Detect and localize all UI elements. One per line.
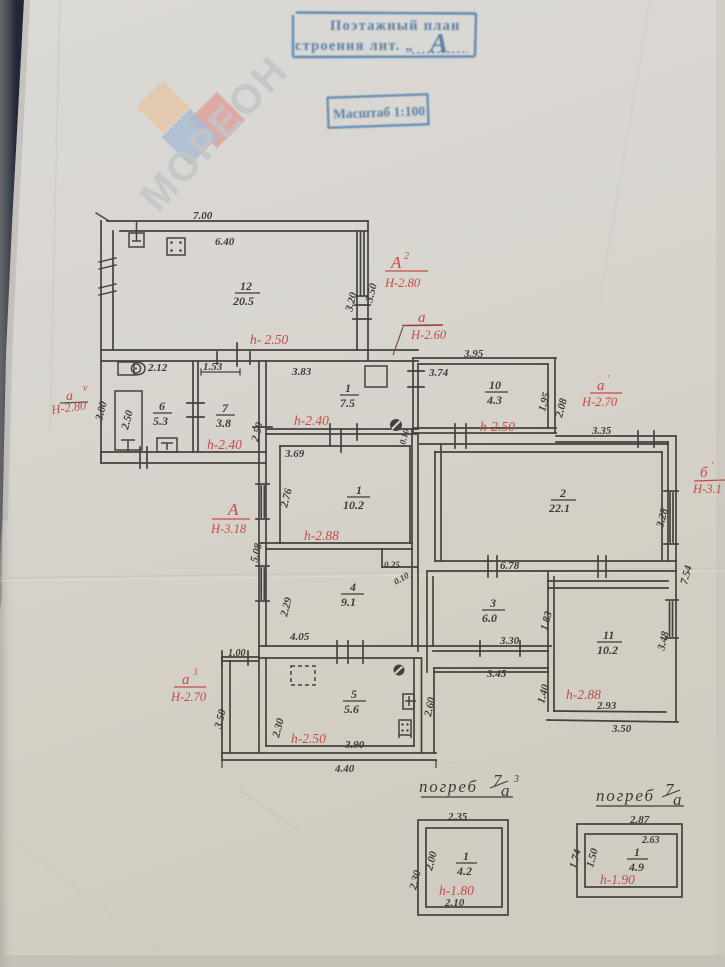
svg-text:3.83: 3.83 bbox=[291, 366, 312, 378]
svg-text:а: а bbox=[182, 672, 190, 688]
svg-text:20.5: 20.5 bbox=[232, 294, 254, 308]
svg-text:4.2: 4.2 bbox=[456, 864, 472, 878]
svg-text:7: 7 bbox=[222, 401, 229, 415]
svg-text:3.50: 3.50 bbox=[611, 723, 632, 735]
svg-text:3.69: 3.69 bbox=[284, 448, 305, 460]
svg-text:2.10: 2.10 bbox=[444, 897, 465, 909]
svg-text:3: 3 bbox=[192, 667, 198, 677]
svg-text:0.25: 0.25 bbox=[384, 560, 400, 570]
svg-text:3.35: 3.35 bbox=[591, 425, 612, 437]
svg-text:7.5: 7.5 bbox=[340, 396, 355, 410]
svg-text:10: 10 bbox=[489, 378, 501, 392]
svg-text:h-2.40: h-2.40 bbox=[207, 437, 242, 452]
svg-text:Н-2.60: Н-2.60 bbox=[410, 328, 447, 342]
svg-text:h-2.88: h-2.88 bbox=[304, 528, 339, 543]
svg-text:h-2.40: h-2.40 bbox=[294, 413, 329, 428]
svg-text:2: 2 bbox=[404, 251, 409, 262]
svg-text:9.1: 9.1 bbox=[341, 595, 356, 609]
svg-text:3.74: 3.74 bbox=[428, 367, 449, 379]
svg-text:h-2.88: h-2.88 bbox=[566, 687, 601, 702]
svg-text:а: а bbox=[597, 378, 605, 394]
svg-text:6.40: 6.40 bbox=[215, 236, 235, 248]
svg-text:строения лит. „: строения лит. „ bbox=[295, 38, 414, 54]
svg-text:А: А bbox=[428, 28, 448, 58]
svg-text:11: 11 bbox=[603, 628, 614, 642]
svg-text:3.30: 3.30 bbox=[499, 635, 520, 647]
svg-text:6.0: 6.0 bbox=[482, 611, 497, 625]
svg-text:1: 1 bbox=[356, 483, 362, 497]
svg-text:Н-2.80: Н-2.80 bbox=[384, 276, 421, 290]
svg-text:h- 2.50: h- 2.50 bbox=[250, 332, 288, 347]
svg-text:Н-2.70: Н-2.70 bbox=[581, 395, 618, 409]
svg-text:6.78: 6.78 bbox=[500, 560, 520, 572]
svg-text:1: 1 bbox=[634, 845, 640, 859]
svg-text:погреб: погреб bbox=[419, 777, 478, 796]
svg-text:1: 1 bbox=[463, 849, 469, 863]
svg-text:7.00: 7.00 bbox=[193, 210, 213, 222]
svg-text:3.45: 3.45 bbox=[486, 668, 507, 680]
svg-text:2.63: 2.63 bbox=[641, 835, 660, 846]
svg-text:5.6: 5.6 bbox=[344, 702, 359, 716]
svg-text:1.53: 1.53 bbox=[203, 361, 223, 373]
svg-text:А: А bbox=[227, 500, 239, 519]
svg-text:Н-3.1: Н-3.1 bbox=[692, 482, 722, 496]
svg-text:4.40: 4.40 bbox=[334, 763, 355, 775]
svg-text:Н-3.18: Н-3.18 bbox=[210, 522, 247, 536]
svg-text:22.1: 22.1 bbox=[548, 501, 570, 515]
svg-text:а: а bbox=[418, 310, 426, 326]
svg-text:3.90: 3.90 bbox=[344, 739, 365, 751]
svg-text:h-2.50: h-2.50 bbox=[291, 731, 326, 746]
svg-text:2.87: 2.87 bbox=[629, 814, 650, 826]
svg-text:А: А bbox=[390, 253, 402, 272]
svg-text:4.05: 4.05 bbox=[289, 631, 310, 643]
svg-text:10.2: 10.2 bbox=[343, 498, 364, 512]
svg-text:2.12: 2.12 bbox=[147, 362, 168, 374]
svg-text:h-1.80: h-1.80 bbox=[439, 883, 474, 898]
svg-text:3.95: 3.95 bbox=[463, 348, 484, 360]
svg-text:1: 1 bbox=[345, 381, 351, 395]
svg-text:3: 3 bbox=[513, 774, 519, 785]
svg-text:5: 5 bbox=[351, 687, 357, 701]
svg-text:4.3: 4.3 bbox=[486, 393, 502, 407]
svg-text:2: 2 bbox=[559, 486, 566, 500]
svg-text:б: б bbox=[700, 465, 708, 481]
svg-text:6: 6 bbox=[159, 399, 165, 413]
svg-text:погреб: погреб bbox=[596, 786, 655, 805]
svg-text:h-2.50: h-2.50 bbox=[480, 419, 515, 434]
svg-text:4: 4 bbox=[349, 580, 356, 594]
svg-text:10.2: 10.2 bbox=[597, 643, 618, 657]
svg-text:12: 12 bbox=[240, 279, 252, 293]
svg-text:2.35: 2.35 bbox=[447, 811, 468, 823]
svg-text:5.3: 5.3 bbox=[153, 414, 168, 428]
svg-text:Н-2.70: Н-2.70 bbox=[170, 690, 207, 704]
svg-text:1.00: 1.00 bbox=[228, 648, 246, 659]
svg-text:h-1.90: h-1.90 bbox=[600, 872, 635, 887]
svg-text:v: v bbox=[83, 383, 88, 394]
svg-text:3: 3 bbox=[489, 596, 496, 610]
svg-text:3.8: 3.8 bbox=[215, 416, 231, 430]
